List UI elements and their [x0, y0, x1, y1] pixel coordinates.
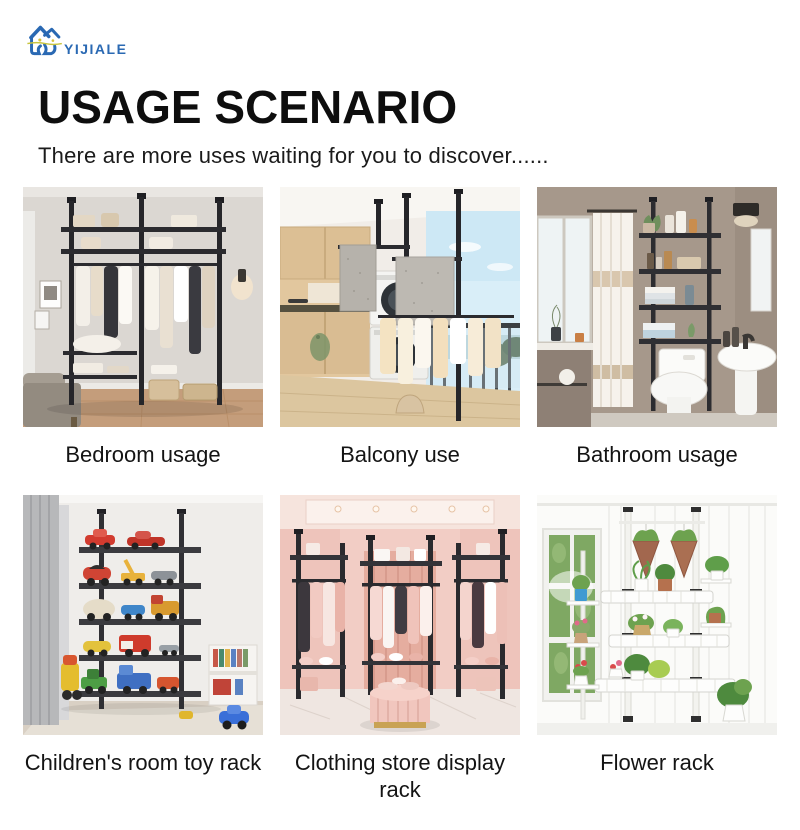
page-header: YIJIALE USAGE SCENARIO There are more us…: [0, 0, 800, 169]
bookshelf: [209, 645, 257, 705]
caption-flower-rack: Flower rack: [537, 735, 777, 803]
shower-curtain: [587, 211, 637, 407]
curtain: [23, 495, 69, 725]
card-bedroom: Bedroom usage: [23, 187, 263, 495]
card-balcony: Balcony use: [280, 187, 520, 495]
caption-balcony: Balcony use: [280, 427, 520, 495]
page-subtitle: There are more uses waiting for you to d…: [38, 143, 800, 169]
bedroom-usage-photo: [23, 187, 263, 427]
page-title: USAGE SCENARIO: [38, 84, 800, 130]
clothing-store-photo: [280, 495, 520, 735]
card-flower-rack: Flower rack: [537, 495, 777, 830]
card-childrens-room: Children's room toy rack: [23, 495, 263, 830]
flower-rack-photo: [537, 495, 777, 735]
balcony-use-photo: [280, 187, 520, 427]
window: [543, 529, 601, 701]
ceiling: [280, 495, 520, 529]
caption-bedroom: Bedroom usage: [23, 427, 263, 495]
card-clothing-store: Clothing store display rack: [280, 495, 520, 830]
childrens-room-photo: [23, 495, 263, 735]
caption-bathroom: Bathroom usage: [537, 427, 777, 495]
caption-clothing-store: Clothing store display rack: [280, 735, 520, 830]
wall-sconce: [733, 203, 759, 227]
brand-logo: YIJIALE: [25, 20, 800, 58]
scenario-grid: Bedroom usage: [23, 187, 777, 830]
caption-childrens-room: Children's room toy rack: [23, 735, 263, 803]
window: [537, 217, 595, 350]
toy-shelf-rack: [79, 509, 201, 709]
house-logo-icon: [25, 22, 63, 58]
bathroom-usage-photo: [537, 187, 777, 427]
card-bathroom: Bathroom usage: [537, 187, 777, 495]
brand-name: YIJIALE: [64, 42, 127, 56]
